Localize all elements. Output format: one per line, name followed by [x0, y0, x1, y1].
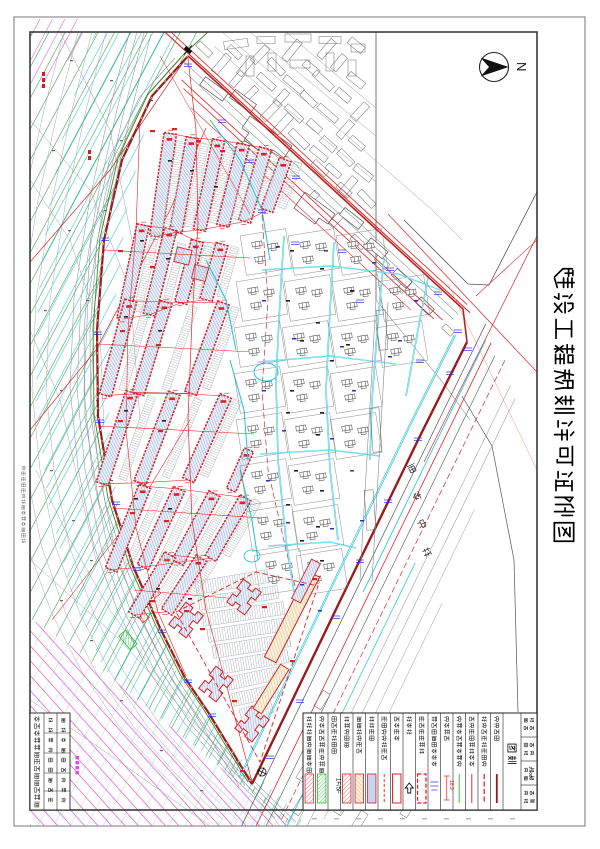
svg-text:1F/5F: 1F/5F: [334, 778, 340, 794]
svg-text:18.9: 18.9: [448, 780, 454, 790]
svg-text:N: N: [514, 62, 529, 71]
svg-text:1:1000: 1:1000: [528, 766, 533, 780]
